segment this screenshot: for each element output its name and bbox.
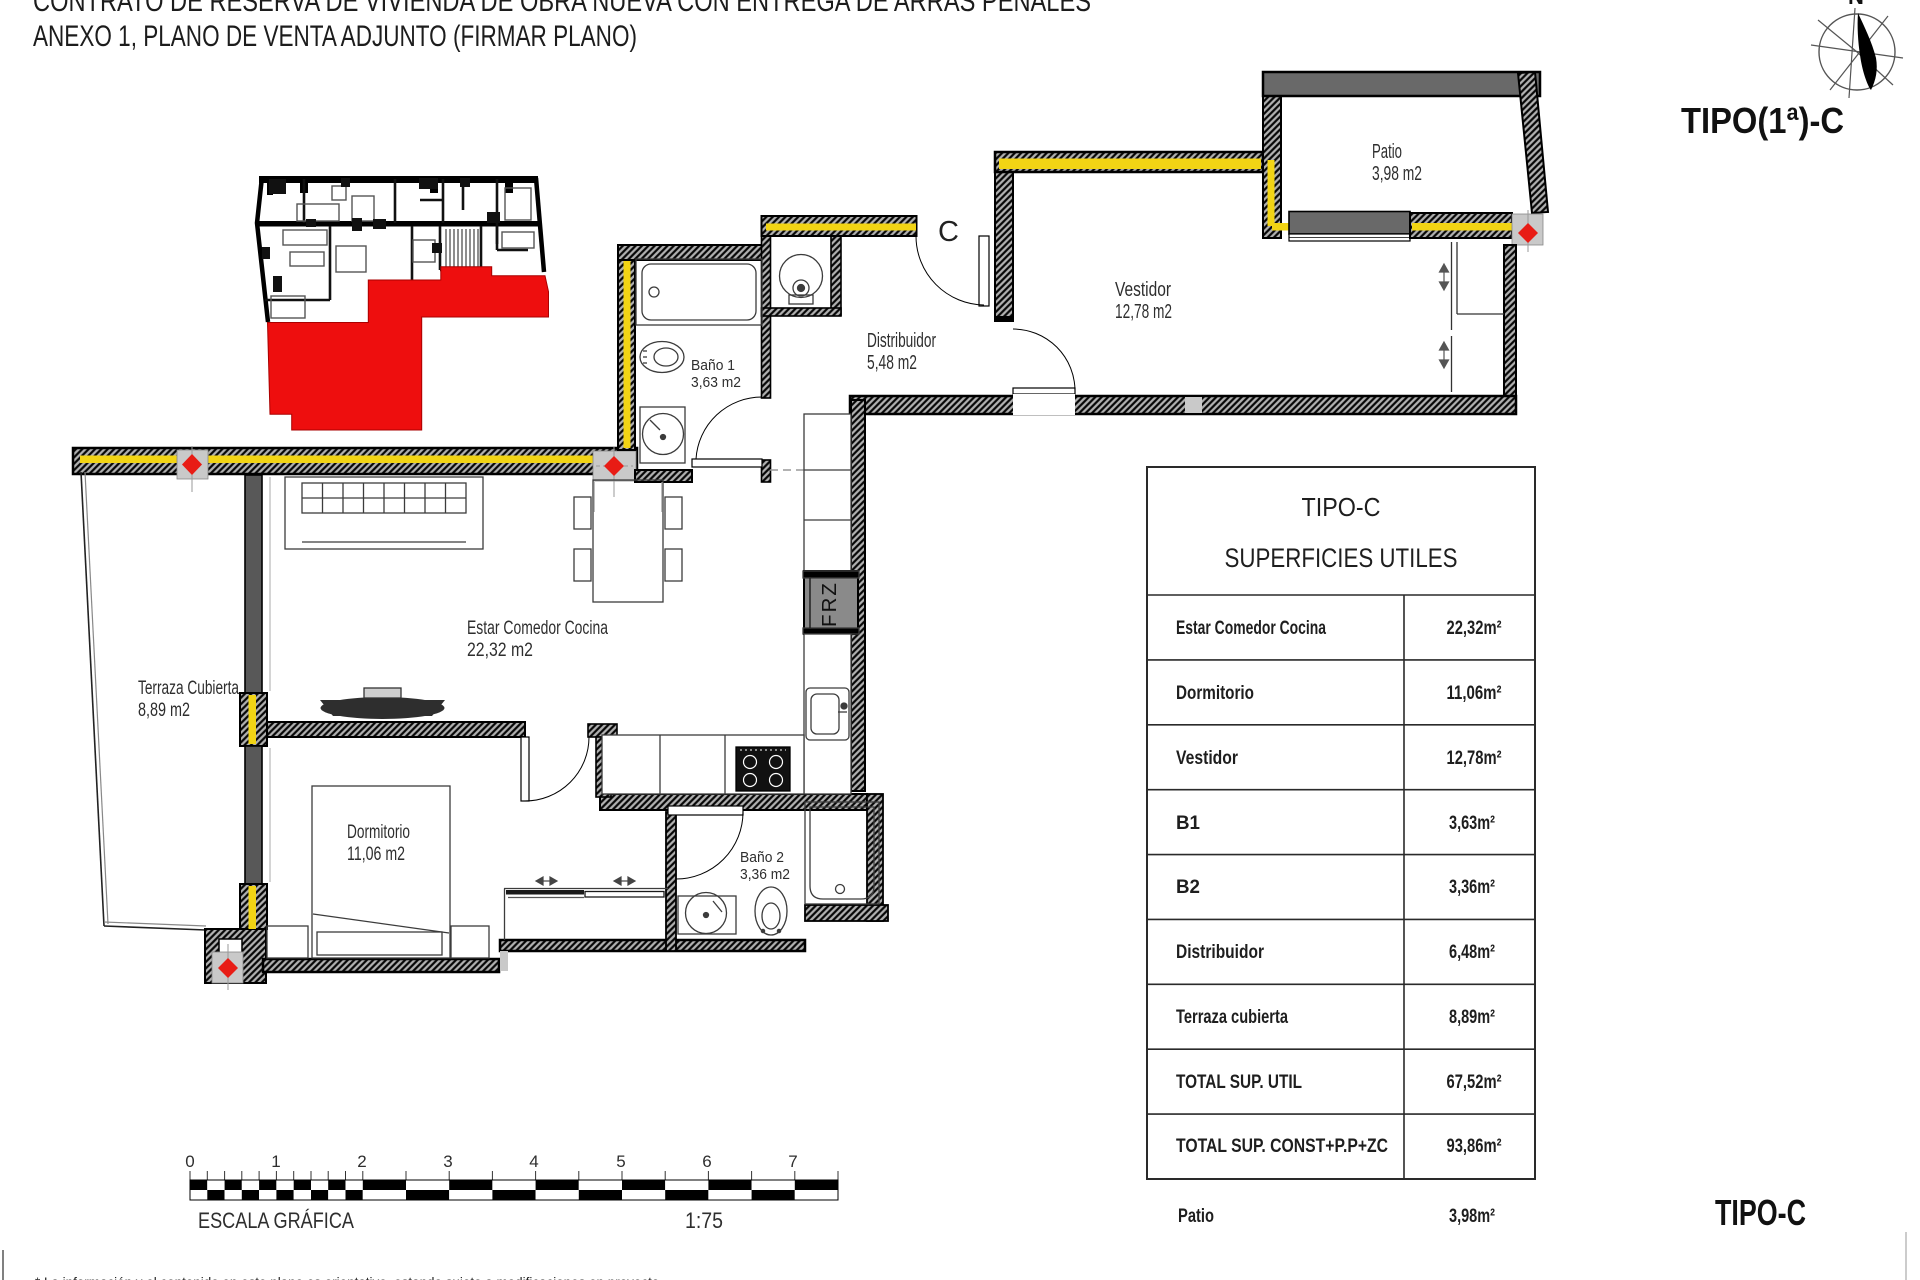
svg-text:TIPO(1ª)-C: TIPO(1ª)-C xyxy=(1681,100,1844,141)
svg-text:TOTAL SUP. UTIL: TOTAL SUP. UTIL xyxy=(1176,1072,1302,1093)
svg-text:Terraza Cubierta: Terraza Cubierta xyxy=(138,678,239,699)
svg-text:Estar Comedor Cocina: Estar Comedor Cocina xyxy=(467,618,608,639)
svg-text:TIPO-C: TIPO-C xyxy=(1715,1192,1806,1233)
svg-text:Distribuidor: Distribuidor xyxy=(867,330,936,352)
svg-text:3,63m²: 3,63m² xyxy=(1449,813,1495,834)
svg-text:3,36m²: 3,36m² xyxy=(1449,877,1495,898)
svg-text:3,98m²: 3,98m² xyxy=(1449,1206,1495,1227)
svg-text:3,36 m2: 3,36 m2 xyxy=(740,867,790,883)
svg-text:6: 6 xyxy=(702,1152,711,1171)
svg-text:N: N xyxy=(1848,0,1864,9)
svg-text:Baño 2: Baño 2 xyxy=(740,850,784,866)
svg-text:12,78m²: 12,78m² xyxy=(1447,748,1502,769)
svg-text:67,52m²: 67,52m² xyxy=(1447,1072,1502,1093)
svg-text:5: 5 xyxy=(616,1152,625,1171)
svg-text:3,63 m2: 3,63 m2 xyxy=(691,375,741,391)
svg-text:ANEXO 1, PLANO DE VENTA ADJUNT: ANEXO 1, PLANO DE VENTA ADJUNTO (FIRMAR … xyxy=(33,20,637,53)
svg-text:3: 3 xyxy=(443,1152,452,1171)
svg-text:* La información y el contenid: * La información y el contenido en este … xyxy=(35,1274,663,1280)
svg-text:8,89 m2: 8,89 m2 xyxy=(138,700,190,721)
svg-text:Dormitorio: Dormitorio xyxy=(1176,683,1254,704)
svg-text:CONTRATO DE RESERVA DE VIVIEND: CONTRATO DE RESERVA DE VIVIENDA DE OBRA … xyxy=(33,0,1091,18)
svg-text:12,78 m2: 12,78 m2 xyxy=(1115,301,1172,323)
svg-text:2: 2 xyxy=(357,1152,366,1171)
svg-text:ESCALA GRÁFICA: ESCALA GRÁFICA xyxy=(198,1208,354,1233)
svg-text:Patio: Patio xyxy=(1372,141,1402,163)
svg-text:5,48 m2: 5,48 m2 xyxy=(867,352,917,374)
svg-text:Terraza cubierta: Terraza cubierta xyxy=(1176,1007,1288,1028)
svg-text:TOTAL SUP. CONST+P.P+ZC: TOTAL SUP. CONST+P.P+ZC xyxy=(1176,1136,1388,1157)
svg-text:Dormitorio: Dormitorio xyxy=(347,822,410,843)
svg-text:C: C xyxy=(938,216,959,248)
svg-text:Vestidor: Vestidor xyxy=(1115,279,1171,301)
svg-text:Distribuidor: Distribuidor xyxy=(1176,942,1264,963)
svg-text:3,98 m2: 3,98 m2 xyxy=(1372,163,1422,185)
svg-text:FRZ: FRZ xyxy=(819,581,841,627)
svg-text:7: 7 xyxy=(788,1152,797,1171)
svg-text:11,06m²: 11,06m² xyxy=(1447,683,1502,704)
svg-text:B2: B2 xyxy=(1176,877,1200,898)
svg-text:Vestidor: Vestidor xyxy=(1176,748,1238,769)
svg-text:1:75: 1:75 xyxy=(685,1208,723,1233)
svg-text:22,32m²: 22,32m² xyxy=(1447,618,1502,639)
svg-text:6,48m²: 6,48m² xyxy=(1449,942,1495,963)
svg-text:B1: B1 xyxy=(1176,813,1200,834)
svg-text:TIPO-C: TIPO-C xyxy=(1302,492,1381,522)
svg-text:1: 1 xyxy=(271,1152,280,1171)
svg-text:Patio: Patio xyxy=(1178,1206,1214,1227)
svg-text:8,89m²: 8,89m² xyxy=(1449,1007,1495,1028)
svg-text:11,06 m2: 11,06 m2 xyxy=(347,844,405,865)
svg-text:0: 0 xyxy=(185,1152,194,1171)
svg-text:93,86m²: 93,86m² xyxy=(1447,1136,1502,1157)
svg-text:Baño 1: Baño 1 xyxy=(691,358,735,374)
svg-text:22,32 m2: 22,32 m2 xyxy=(467,640,533,661)
svg-text:Estar Comedor Cocina: Estar Comedor Cocina xyxy=(1176,618,1326,639)
svg-text:4: 4 xyxy=(529,1152,538,1171)
svg-text:SUPERFICIES UTILES: SUPERFICIES UTILES xyxy=(1225,543,1458,573)
